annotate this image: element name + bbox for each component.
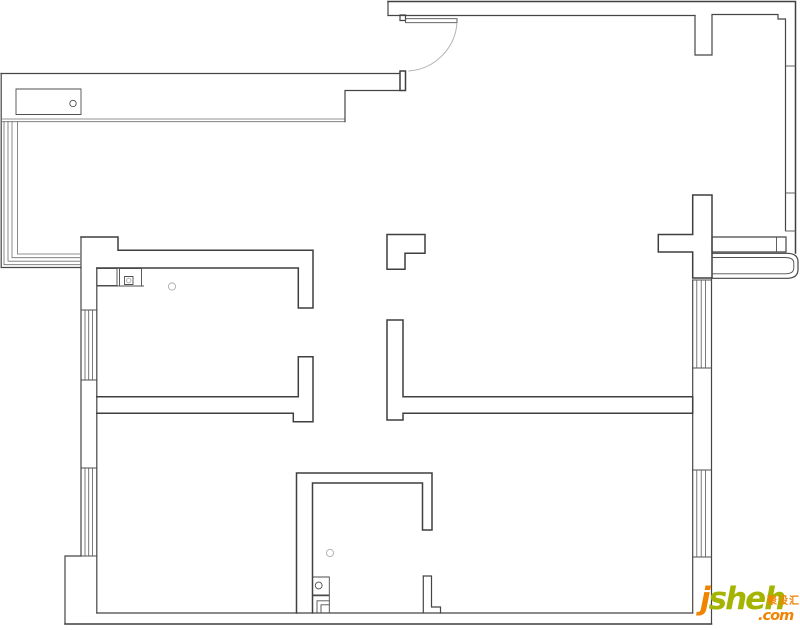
watermark-chinese-name: 聚设汇: [767, 597, 800, 607]
east-bay-rail-inner: [712, 258, 794, 274]
watermark-j: j: [700, 581, 709, 617]
bathroom-floor-drain: [326, 549, 333, 556]
balcony-sink-drain: [70, 100, 76, 106]
bedroom1-ceiling-lamp: [168, 283, 175, 290]
east-sill-wall: [712, 237, 786, 252]
west-balcony-rail: [12, 122, 81, 258]
north-wall-step: [345, 91, 400, 122]
northeast-wall-pier: [695, 16, 712, 56]
bedroom1-cabinet-flap: [125, 277, 134, 285]
northeast-outer-wall: [388, 2, 796, 254]
watermark-dotcom: .com: [758, 609, 793, 624]
west-balcony-rail: [8, 122, 81, 262]
hall-tee-wall: [387, 320, 693, 420]
balcony-sink-counter: [16, 89, 81, 115]
floorplan-svg: [0, 0, 800, 630]
entry-door-swing-arc: [409, 23, 458, 71]
floorplan: [0, 0, 800, 630]
bedroom1-north-wall: [81, 237, 313, 308]
east-wall-inner-edge: [712, 15, 786, 231]
bathroom-door-pillar: [423, 576, 440, 613]
west-balcony-outer-edge: [1, 74, 81, 268]
bathroom-walls: [297, 473, 433, 613]
west-balcony-rail: [18, 122, 82, 254]
west-wall-jut: [65, 556, 81, 624]
hall-corner-pillar: [387, 235, 425, 270]
entry-door-leaf: [406, 19, 458, 23]
bedroom1-cabinet: [97, 269, 117, 286]
cross-wall-junction: [658, 195, 712, 278]
west-balcony-rail: [4, 122, 81, 265]
bedroom1-cabinet: [120, 269, 142, 287]
bathroom-fixture-corner: [317, 601, 329, 613]
entry-wall-end-cap: [400, 71, 406, 91]
site-watermark: jsheh .com 聚设汇: [698, 588, 800, 630]
bathroom-fixture-drain: [315, 582, 322, 589]
bedroom2-north-wall: [97, 357, 313, 422]
bathroom-fixture-corner: [321, 605, 329, 613]
bedroom1-cabinet-knob: [127, 278, 131, 282]
